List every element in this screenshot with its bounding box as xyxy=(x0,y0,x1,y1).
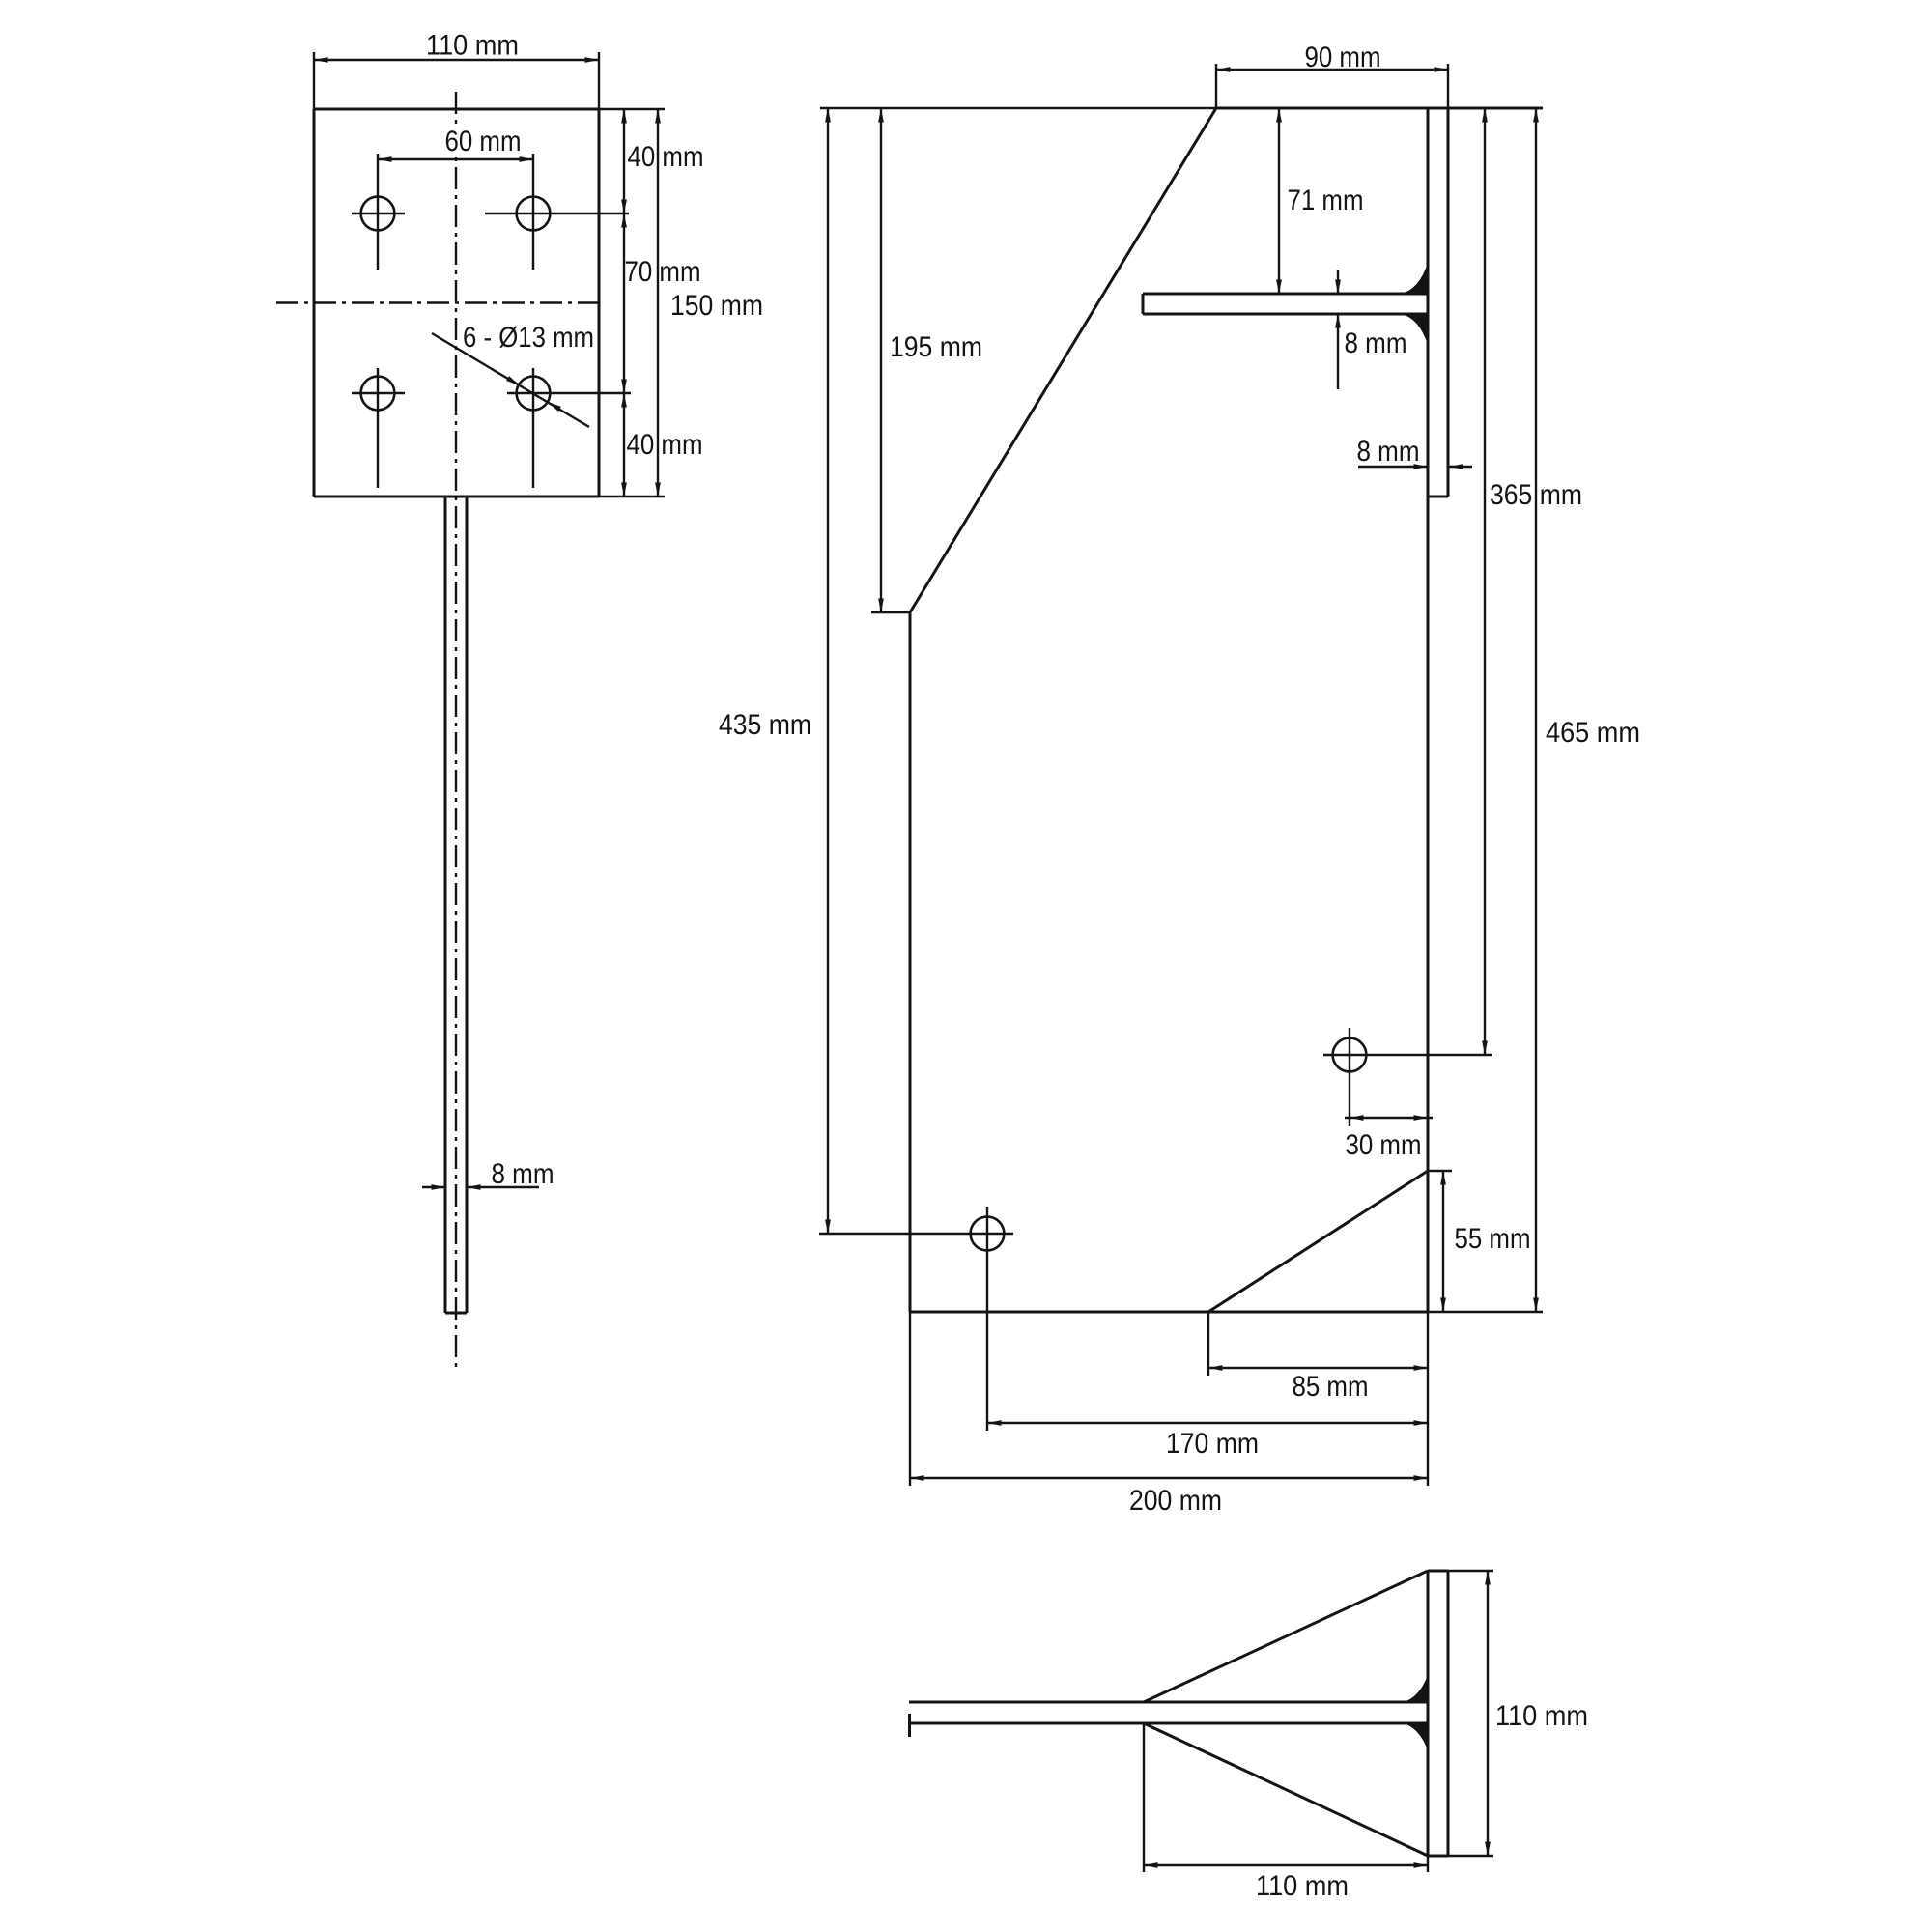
svg-text:110 mm: 110 mm xyxy=(426,30,519,62)
svg-text:150 mm: 150 mm xyxy=(670,290,763,322)
svg-text:8 mm: 8 mm xyxy=(492,1158,554,1190)
svg-text:465 mm: 465 mm xyxy=(1546,717,1640,749)
svg-text:90 mm: 90 mm xyxy=(1305,42,1381,73)
svg-text:8 mm: 8 mm xyxy=(1345,327,1407,359)
svg-text:170 mm: 170 mm xyxy=(1166,1428,1259,1460)
svg-text:8 mm: 8 mm xyxy=(1357,436,1420,468)
svg-text:55 mm: 55 mm xyxy=(1455,1223,1531,1255)
svg-text:70 mm: 70 mm xyxy=(625,256,701,288)
svg-text:110 mm: 110 mm xyxy=(1256,1870,1349,1902)
svg-text:6 - Ø13 mm: 6 - Ø13 mm xyxy=(463,322,594,354)
svg-text:435 mm: 435 mm xyxy=(719,709,811,741)
svg-text:60 mm: 60 mm xyxy=(445,126,522,157)
svg-text:85 mm: 85 mm xyxy=(1293,1371,1369,1403)
svg-text:110 mm: 110 mm xyxy=(1495,1700,1588,1732)
svg-text:200 mm: 200 mm xyxy=(1129,1485,1222,1517)
svg-text:40 mm: 40 mm xyxy=(627,429,703,461)
svg-text:30 mm: 30 mm xyxy=(1346,1129,1422,1161)
svg-text:71 mm: 71 mm xyxy=(1288,185,1364,216)
svg-text:40 mm: 40 mm xyxy=(628,141,704,173)
svg-text:195 mm: 195 mm xyxy=(890,331,982,363)
